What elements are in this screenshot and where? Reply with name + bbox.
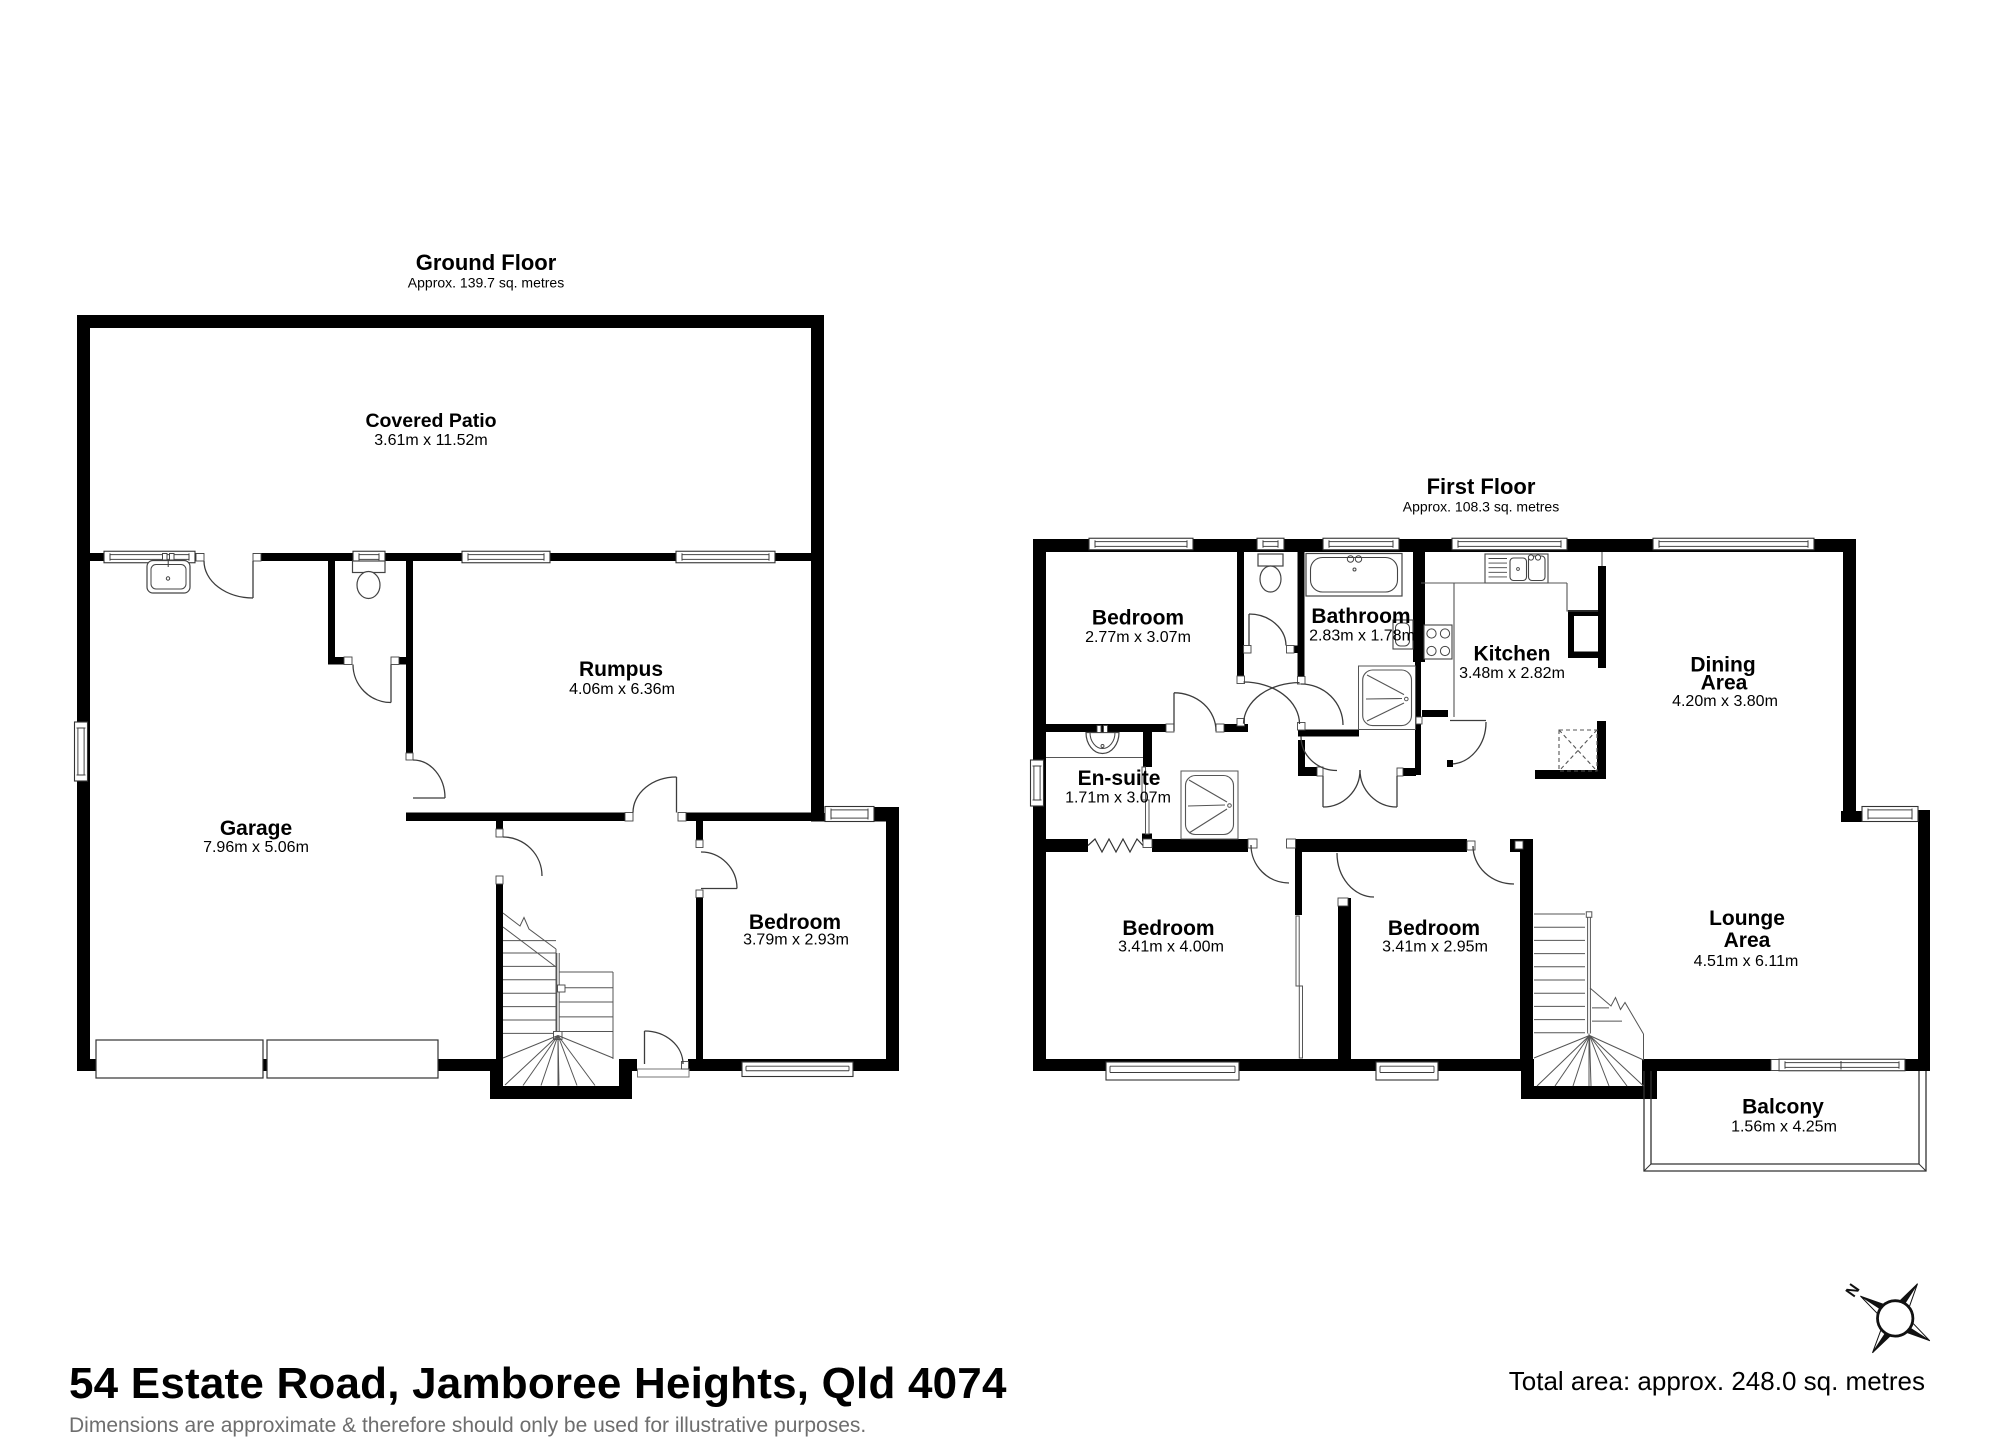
svg-text:Dimensions are approximate & t: Dimensions are approximate & therefore s…: [69, 1414, 866, 1437]
svg-text:4.06m x 6.36m: 4.06m x 6.36m: [569, 681, 675, 698]
svg-text:Approx. 139.7 sq. metres: Approx. 139.7 sq. metres: [408, 275, 564, 291]
svg-text:En-suite: En-suite: [1078, 767, 1161, 790]
svg-text:Bathroom: Bathroom: [1311, 605, 1410, 628]
svg-text:Approx. 108.3 sq. metres: Approx. 108.3 sq. metres: [1403, 499, 1559, 515]
svg-text:Balcony: Balcony: [1742, 1096, 1824, 1119]
svg-text:Area: Area: [1701, 672, 1748, 695]
svg-text:Lounge: Lounge: [1709, 907, 1785, 930]
svg-text:Ground Floor: Ground Floor: [416, 250, 557, 275]
svg-text:Bedroom: Bedroom: [1092, 607, 1184, 630]
svg-text:Covered Patio: Covered Patio: [365, 410, 496, 432]
svg-text:54 Estate Road, Jamboree Heigh: 54 Estate Road, Jamboree Heights, Qld 40…: [69, 1359, 1007, 1408]
svg-text:Garage: Garage: [220, 817, 292, 840]
svg-text:Bedroom: Bedroom: [1122, 917, 1214, 940]
svg-text:2.77m x 3.07m: 2.77m x 3.07m: [1085, 629, 1191, 646]
svg-text:2.83m x 1.78m: 2.83m x 1.78m: [1309, 628, 1415, 645]
svg-text:3.79m x 2.93m: 3.79m x 2.93m: [743, 932, 849, 949]
svg-text:3.61m x 11.52m: 3.61m x 11.52m: [374, 432, 488, 449]
svg-text:First Floor: First Floor: [1427, 474, 1536, 499]
svg-text:Rumpus: Rumpus: [579, 658, 663, 681]
svg-text:4.20m x 3.80m: 4.20m x 3.80m: [1672, 693, 1778, 710]
svg-text:7.96m x 5.06m: 7.96m x 5.06m: [203, 839, 309, 856]
svg-text:1.71m x 3.07m: 1.71m x 3.07m: [1065, 790, 1171, 807]
svg-text:3.41m x 4.00m: 3.41m x 4.00m: [1118, 939, 1224, 956]
svg-text:Kitchen: Kitchen: [1473, 643, 1550, 666]
svg-text:3.48m x 2.82m: 3.48m x 2.82m: [1459, 665, 1565, 682]
svg-text:4.51m x 6.11m: 4.51m x 6.11m: [1694, 953, 1799, 970]
svg-text:Total area: approx. 248.0 sq.: Total area: approx. 248.0 sq. metres: [1509, 1366, 1925, 1396]
svg-text:Area: Area: [1724, 929, 1771, 952]
svg-text:Bedroom: Bedroom: [1388, 917, 1480, 940]
svg-text:3.41m x 2.95m: 3.41m x 2.95m: [1382, 939, 1488, 956]
svg-text:1.56m x 4.25m: 1.56m x 4.25m: [1731, 1119, 1837, 1136]
